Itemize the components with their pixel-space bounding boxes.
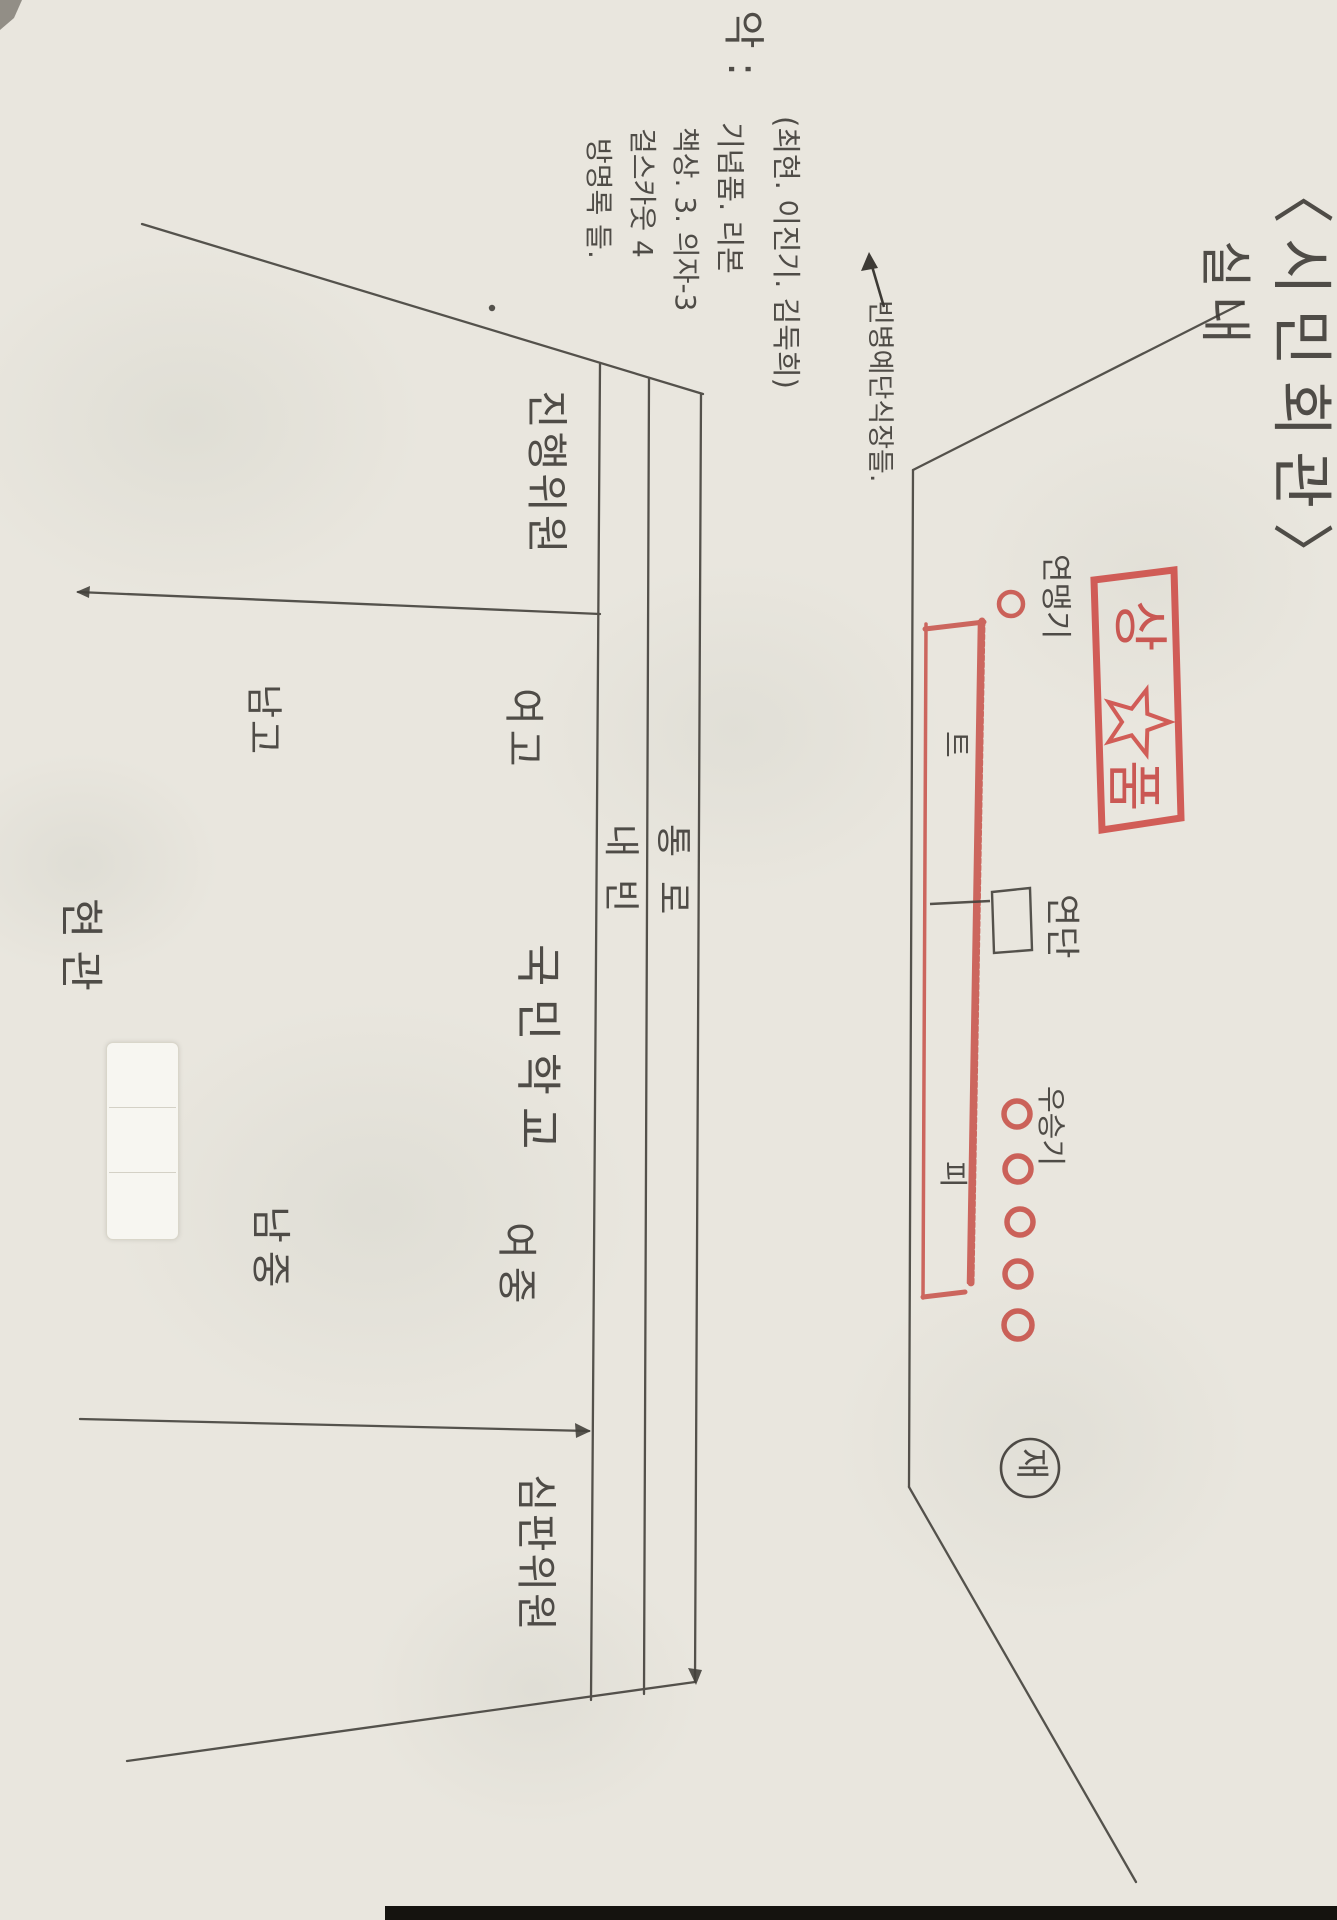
memo-item-names: (최현. 이진기. 김둑희) xyxy=(771,116,800,389)
memo-item-souvenir: 기념품. 리본 xyxy=(715,122,744,274)
podium-label: 연단 xyxy=(1043,894,1078,958)
section-boys-middle: 남중 xyxy=(250,1206,290,1296)
stamp-char-bottom: 품 xyxy=(1104,760,1160,812)
white-correction-note xyxy=(106,1042,179,1240)
memo-item-registry: 방명록 들. xyxy=(584,138,612,259)
winners-flag-label: 우승기 xyxy=(1036,1086,1065,1166)
stage-wall xyxy=(909,303,1243,1882)
memo-header: 악 : xyxy=(722,10,764,76)
section-judges: 심판위원 xyxy=(515,1474,556,1633)
winners-flag-circle-1 xyxy=(1004,1101,1030,1127)
platform-back-edge xyxy=(923,624,926,1298)
page-subtitle: 실내 xyxy=(1198,240,1250,352)
section-boys-high: 남고 xyxy=(245,684,282,756)
platform-bottom-edge xyxy=(923,1292,965,1297)
section-girls-middle: 여중 xyxy=(496,1222,536,1312)
front-row-guests: 내빈 xyxy=(602,824,638,934)
hall-bottom-wall-line xyxy=(127,1682,695,1761)
front-band-line-1 xyxy=(591,364,600,1700)
stage-wall-bottom-diagonal xyxy=(909,1487,1136,1882)
scan-bottom-bar xyxy=(385,1906,1337,1920)
winners-flag-circle-5 xyxy=(1004,1311,1032,1339)
front-row-aisle: 통로 xyxy=(654,824,690,938)
podium-square xyxy=(992,888,1032,953)
hall-arrowheads xyxy=(76,305,702,1685)
memo-item-scouts: 걸스카웃 4 xyxy=(628,128,656,258)
section-elementary: 국민학교 xyxy=(515,944,561,1161)
podium-pointer-line xyxy=(930,901,990,904)
stamp-char-top: 상 xyxy=(1110,600,1166,652)
section-steering-committee: 진행위원 xyxy=(525,390,567,557)
entrance-label: 현관 xyxy=(58,898,102,1003)
scanned-floorplan-page: 〈시민회관〉 실내 악 : (최현. 이진기. 김둑희) 기념품. 리본 책상.… xyxy=(0,0,1337,1920)
federation-flag-label: 연맹기 xyxy=(1039,554,1070,640)
arrowhead-left xyxy=(76,586,90,598)
front-band-line-2 xyxy=(644,378,649,1694)
memo-item-desks: 책상. 3. 의자-3 xyxy=(671,127,699,311)
scan-corner-blotch xyxy=(0,0,22,30)
memo-arrow xyxy=(861,252,884,307)
row-divider-top xyxy=(78,592,600,614)
winners-flag-circle-3 xyxy=(1007,1209,1033,1235)
podium xyxy=(930,888,1032,953)
hall-outline xyxy=(78,224,703,1761)
winners-flag-circle-4 xyxy=(1005,1261,1031,1287)
federation-flag-circle xyxy=(999,592,1023,616)
section-girls-high: 여고 xyxy=(503,688,543,772)
row-divider-bottom xyxy=(80,1419,589,1431)
winners-flag-circle-2 xyxy=(1005,1156,1031,1182)
stage-platform xyxy=(923,621,984,1298)
star-icon xyxy=(1109,690,1171,755)
circled-mark-char: 재 xyxy=(1014,1448,1048,1479)
front-band-line-3 xyxy=(695,394,701,1682)
platform-mark-bottom: 피 xyxy=(938,1161,967,1188)
arrowhead-right xyxy=(575,1423,591,1438)
stage-wall-vertical xyxy=(909,470,913,1487)
flag-markers xyxy=(999,592,1033,1339)
memo-arrow-note: 빈병예단식장들. xyxy=(866,300,893,482)
platform-top-edge xyxy=(925,622,984,629)
page-title: 〈시민회관〉 xyxy=(1270,162,1332,598)
memo-arrow-head xyxy=(861,252,878,271)
wall-dot xyxy=(489,305,495,311)
platform-mark-top: 트 xyxy=(941,731,970,758)
note-divider-1 xyxy=(109,1107,176,1108)
hall-top-wall-line xyxy=(142,224,703,394)
note-divider-2 xyxy=(109,1172,176,1173)
